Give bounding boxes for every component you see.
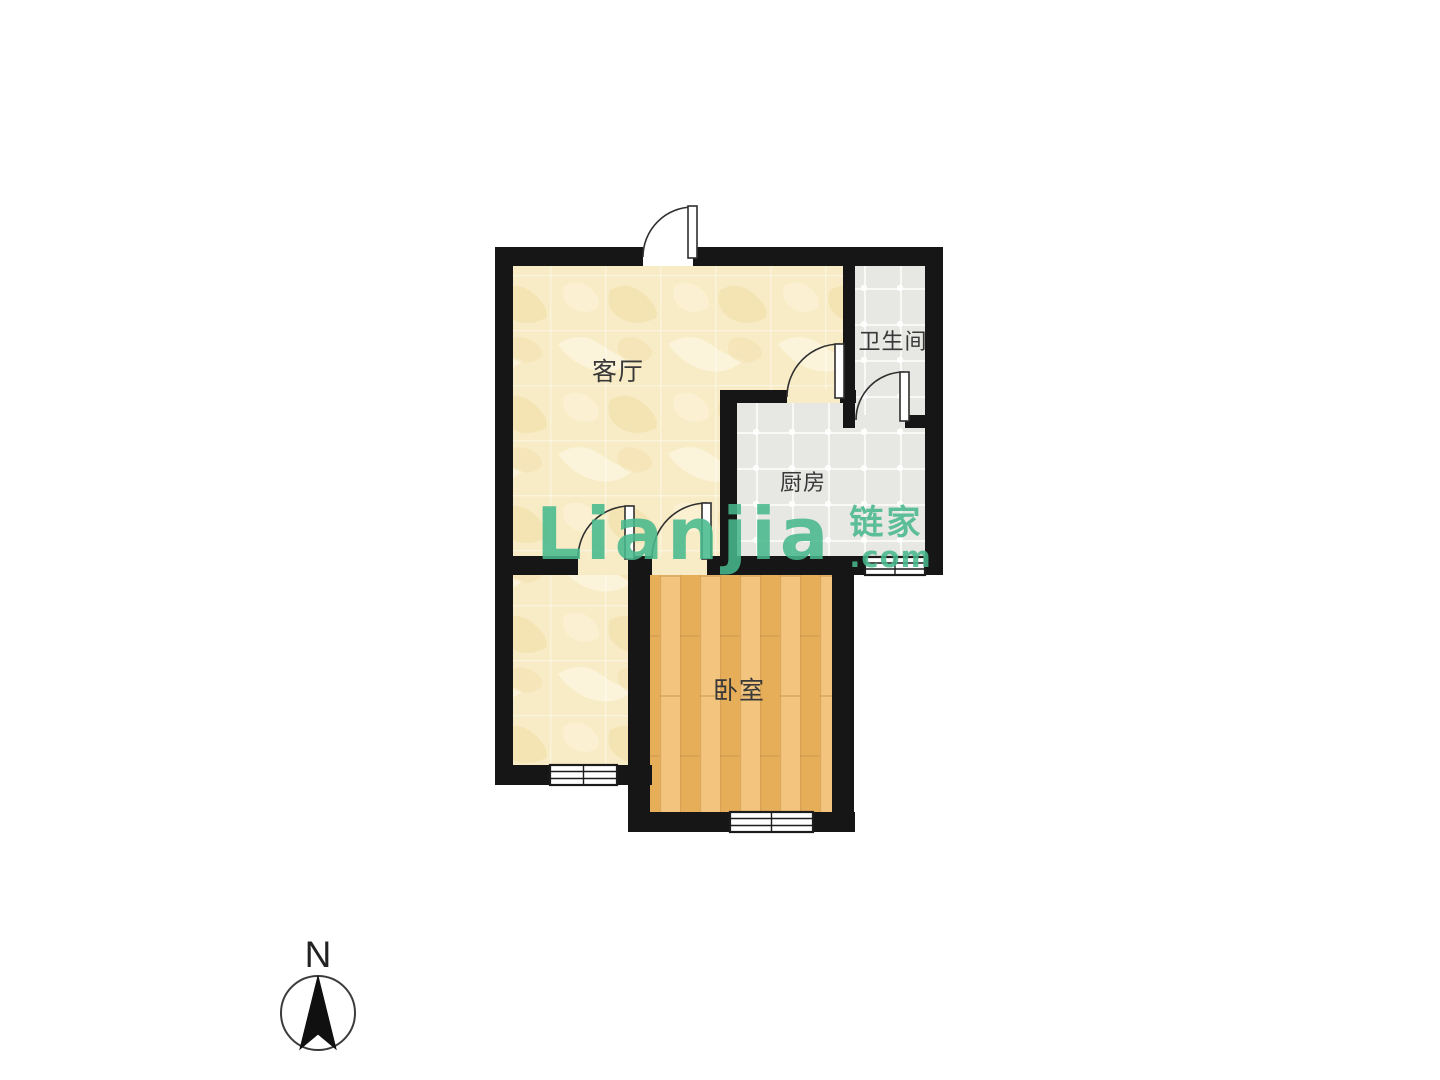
compass-north-label: N bbox=[305, 934, 332, 975]
entrance-door-opening bbox=[643, 247, 693, 266]
floorplan-page: 客厅 卫生间 厨房 卧室 N Lianjia 链家 .com bbox=[0, 0, 1440, 1080]
floor-plan: 客厅 卫生间 厨房 卧室 N bbox=[0, 0, 1440, 1080]
bathroom-door-opening bbox=[855, 415, 905, 428]
bathroom-label: 卫生间 bbox=[858, 329, 927, 354]
kitchen-label: 厨房 bbox=[780, 470, 826, 495]
hallway-window bbox=[550, 765, 617, 785]
living-room-label: 客厅 bbox=[592, 358, 644, 386]
bedroom-label: 卧室 bbox=[713, 677, 765, 705]
bedroom-door-opening bbox=[652, 556, 707, 575]
kitchen-door-opening bbox=[787, 390, 840, 403]
hallway-door-opening bbox=[578, 556, 628, 575]
bedroom-window bbox=[730, 812, 813, 832]
hallway-room-floor bbox=[513, 575, 628, 765]
compass: N bbox=[281, 934, 355, 1050]
kitchen-window bbox=[865, 557, 925, 575]
